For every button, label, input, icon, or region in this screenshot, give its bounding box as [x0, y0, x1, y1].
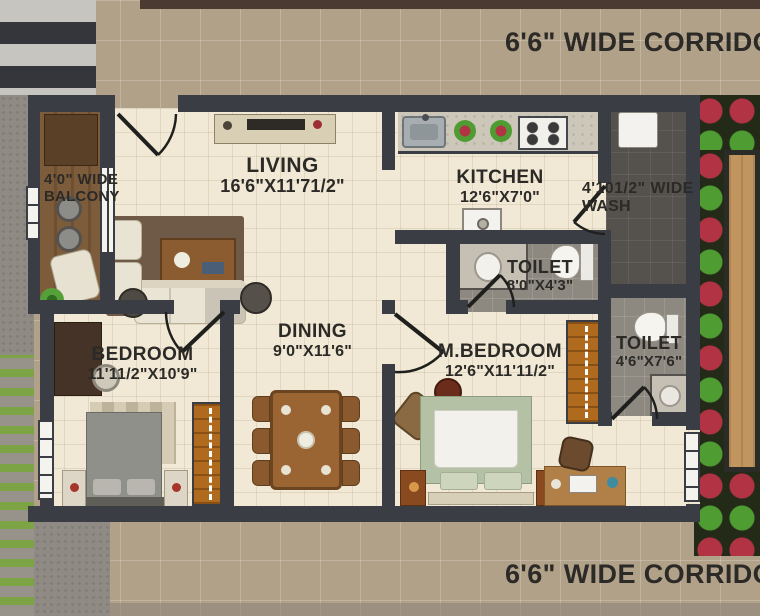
dining-label: DINING 9'0"X11'6" [230, 322, 395, 360]
decor-dark [223, 121, 232, 130]
flower-bed-top-right [694, 95, 760, 157]
wash-label: 4'101/2" WIDE WASH [582, 180, 692, 215]
nightstand [62, 470, 86, 508]
balcony-label: 4'0" WIDE BALCONY [36, 172, 154, 205]
lamp [172, 483, 181, 492]
bedroom-window [38, 420, 54, 500]
wall-bottom [28, 506, 700, 522]
wall-top [178, 95, 700, 112]
plate [321, 405, 331, 415]
plant-pot [454, 120, 476, 142]
wall-toilet-bottom [446, 300, 468, 314]
wall-kitchen-wash [598, 95, 611, 183]
balcony-stool [56, 226, 82, 252]
centerpiece [297, 431, 315, 449]
sink-basin [410, 124, 438, 140]
plate [174, 252, 190, 268]
kitchen-sink [402, 116, 446, 148]
dining-chair [342, 460, 360, 486]
wall-kitchen-bottom [395, 230, 604, 244]
floor-lamp [240, 282, 272, 314]
nightstand [400, 470, 426, 506]
master-window [684, 432, 700, 502]
curb-strip-bottom [110, 603, 760, 616]
wall-toilet-bottom [506, 300, 604, 314]
lamp [70, 483, 79, 492]
dining-chair [342, 396, 360, 422]
toilet-common-label: TOILET 8'0"X4'3" [470, 258, 610, 294]
wall-dining-master [382, 364, 395, 522]
basin-counter [650, 374, 688, 416]
wood-deck-right [724, 150, 760, 472]
plate [321, 465, 331, 475]
wall-living-kitchen [382, 112, 395, 170]
desk-item [551, 479, 561, 489]
monitor [569, 475, 597, 493]
wall-toilet2-bottom [598, 412, 612, 426]
faucet [422, 114, 429, 121]
pillow [484, 472, 522, 490]
floor-plan: 6'6" WIDE CORRIDOR 6'6" WIDE CORRIDOR 4'… [0, 0, 760, 616]
plant-pot [490, 120, 512, 142]
lamp [409, 482, 419, 492]
flower-bed-bottom-right [694, 470, 760, 556]
wall-wash-toilet [598, 284, 700, 298]
living-label: LIVING 16'6"X11'71/2" [190, 154, 375, 197]
geyser [618, 112, 658, 148]
wall-bedroom-top [28, 300, 174, 314]
wash-basin [659, 385, 681, 407]
grass-pavers-left [0, 355, 34, 616]
wardrobe-handles [209, 408, 212, 500]
tray [202, 262, 224, 274]
decor-red [313, 120, 322, 129]
stove [518, 116, 568, 150]
dining-chair [342, 428, 360, 454]
washer-door [477, 218, 489, 230]
coffee-table [160, 238, 236, 284]
tv-screen [247, 119, 305, 130]
gravel-path-bottom-left [34, 510, 110, 616]
balcony-table [44, 114, 98, 166]
dining-chair [252, 396, 270, 422]
plate [281, 465, 291, 475]
dining-chair [252, 428, 270, 454]
kitchen-label: KITCHEN 12'6"X7'0" [415, 168, 585, 206]
dressing-desk [544, 466, 626, 506]
pavement-stripes [0, 0, 96, 95]
plate [281, 405, 291, 415]
headboard [428, 492, 534, 505]
dining-table [270, 390, 342, 490]
tv-unit [214, 114, 336, 144]
building-edge-top [140, 0, 760, 9]
corridor-top-label: 6'6" WIDE CORRIDOR [505, 28, 760, 58]
wall-right [686, 95, 700, 430]
dining-chair [252, 460, 270, 486]
corridor-bottom-label: 6'6" WIDE CORRIDOR [505, 560, 760, 590]
desk-item [607, 477, 618, 488]
nightstand [164, 470, 188, 508]
pillow [127, 479, 155, 495]
wall-dining-master [382, 300, 395, 314]
bedroom-label: BEDROOM 11'11/2"X10'9" [60, 345, 225, 383]
master-bed-duvet [434, 410, 518, 468]
pillow [440, 472, 478, 490]
toilet-master-label: TOILET 4'6"X7'6" [606, 334, 692, 370]
pillow [93, 479, 121, 495]
bed [86, 412, 162, 508]
master-bedroom-label: M.BEDROOM 12'6"X11'11/2" [405, 342, 595, 380]
